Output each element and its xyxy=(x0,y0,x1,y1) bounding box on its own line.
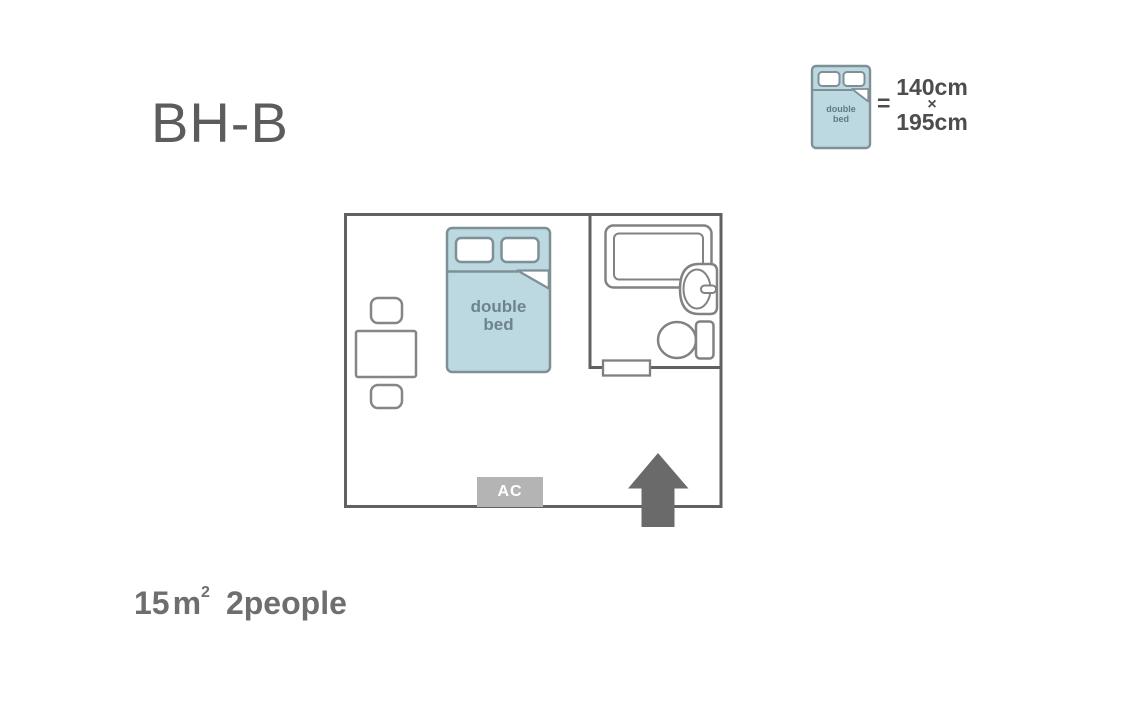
ac-label: AC xyxy=(497,483,522,501)
bed-label: double bed xyxy=(447,298,550,334)
page-title: BH-B xyxy=(151,95,289,151)
capacity-value: 2people xyxy=(226,585,347,621)
ac-unit-badge: AC xyxy=(477,477,543,507)
legend-bed-label-line1: double xyxy=(812,104,870,114)
toilet-tank xyxy=(696,322,714,359)
legend-equals-sign: = xyxy=(877,92,890,115)
stool-bottom xyxy=(371,385,402,408)
legend-bed-pillow-right xyxy=(844,72,865,86)
bed-pillow-right xyxy=(502,238,539,262)
bed-length-value: 195cm xyxy=(894,112,970,132)
legend-bed-label: double bed xyxy=(812,104,870,124)
table xyxy=(356,331,416,377)
bathroom-door xyxy=(603,361,650,376)
area-unit-exponent: 2 xyxy=(201,584,210,601)
legend-bed-pillow-left xyxy=(819,72,840,86)
bed-label-line2: bed xyxy=(447,316,550,334)
legend-bed-label-line2: bed xyxy=(812,114,870,124)
area-unit: m xyxy=(173,585,201,621)
bed-width-value: 140cm xyxy=(894,77,970,97)
toilet-bowl xyxy=(658,322,696,358)
area-value: 15 xyxy=(134,585,170,621)
legend-dimensions: 140cm × 195cm xyxy=(894,77,970,132)
bed-pillow-left xyxy=(456,238,493,262)
sink-faucet xyxy=(701,286,716,294)
stool-top xyxy=(371,298,402,323)
entrance-arrow-icon xyxy=(628,453,689,527)
bed-label-line1: double xyxy=(447,298,550,316)
room-info: 15m22people xyxy=(134,586,347,621)
